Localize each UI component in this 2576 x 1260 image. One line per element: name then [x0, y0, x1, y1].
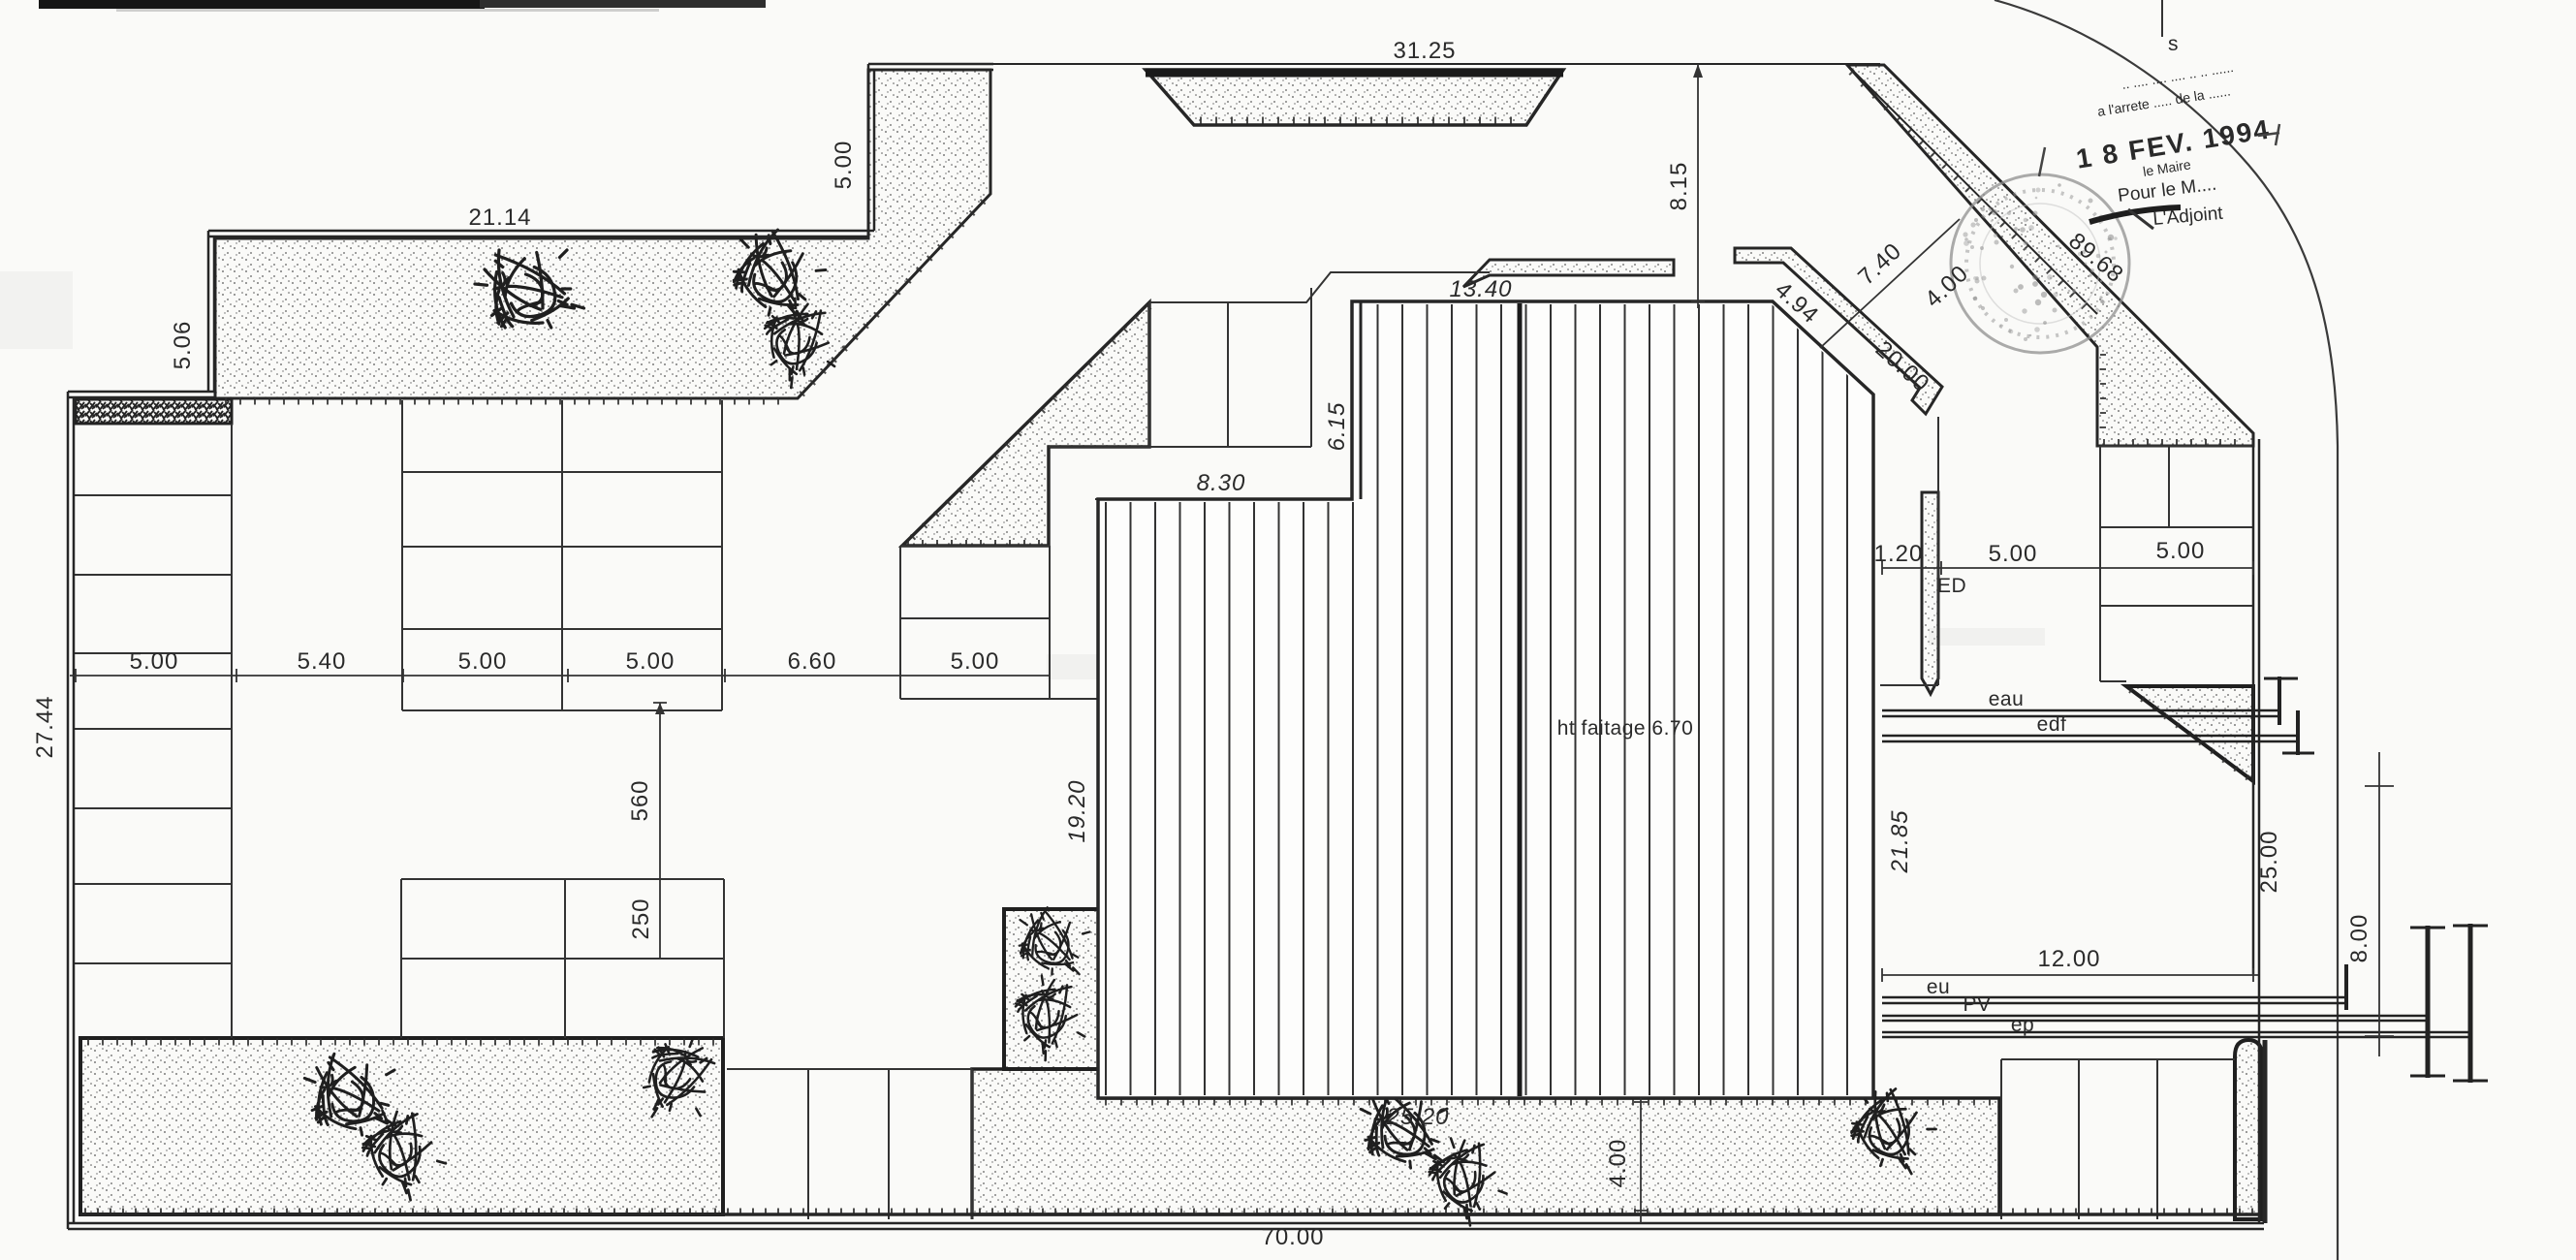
svg-text:21.85: 21.85 — [1887, 809, 1913, 873]
svg-text:5.00: 5.00 — [951, 648, 1000, 675]
svg-text:21.14: 21.14 — [468, 205, 531, 231]
svg-text:eu: eu — [1927, 976, 1950, 998]
svg-text:ht faitage 6.70: ht faitage 6.70 — [1557, 717, 1694, 740]
svg-text:edf: edf — [2037, 713, 2067, 736]
svg-text:ED: ED — [1937, 575, 1966, 597]
svg-text:eau: eau — [1989, 688, 2025, 710]
svg-text:ep: ep — [2011, 1014, 2034, 1036]
svg-text:5.06: 5.06 — [170, 321, 196, 370]
svg-text:12.00: 12.00 — [2037, 946, 2100, 972]
svg-text:8.15: 8.15 — [1666, 162, 1692, 211]
svg-text:5.00: 5.00 — [831, 141, 857, 190]
svg-text:8.30: 8.30 — [1197, 470, 1246, 496]
svg-text:1.20: 1.20 — [1874, 541, 1924, 567]
svg-text:25.20: 25.20 — [1385, 1104, 1449, 1130]
svg-text:8.00: 8.00 — [2346, 914, 2372, 963]
svg-text:560: 560 — [627, 779, 653, 821]
svg-text:25.00: 25.00 — [2256, 830, 2282, 893]
svg-text:s: s — [2168, 33, 2179, 55]
svg-text:5.00: 5.00 — [626, 648, 675, 675]
svg-text:4.00: 4.00 — [1605, 1139, 1631, 1188]
svg-text:250: 250 — [628, 898, 654, 939]
svg-text:5.00: 5.00 — [2156, 538, 2206, 564]
svg-text:27.44: 27.44 — [32, 695, 58, 758]
svg-text:19.20: 19.20 — [1064, 779, 1090, 842]
svg-text:13.40: 13.40 — [1449, 276, 1512, 302]
svg-text:5.40: 5.40 — [298, 648, 347, 675]
svg-text:31.25: 31.25 — [1393, 38, 1456, 64]
svg-text:6.15: 6.15 — [1324, 402, 1350, 452]
svg-text:6.60: 6.60 — [788, 648, 837, 675]
svg-text:5.00: 5.00 — [458, 648, 508, 675]
svg-text:70.00: 70.00 — [1261, 1224, 1324, 1250]
svg-text:5.00: 5.00 — [130, 648, 179, 675]
svg-text:5.00: 5.00 — [1989, 541, 2038, 567]
svg-text:PV: PV — [1963, 993, 1991, 1016]
